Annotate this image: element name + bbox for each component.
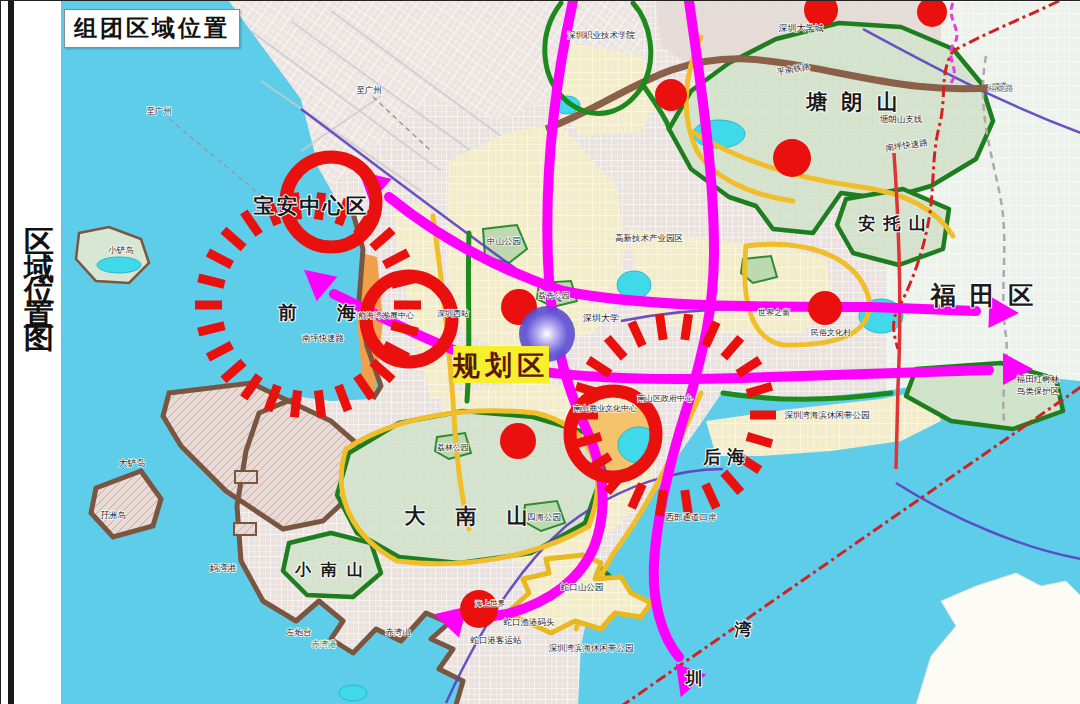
map-label: 孖洲岛 bbox=[100, 510, 126, 520]
map-label: 福田区 bbox=[930, 281, 1048, 309]
map-label: 深圳职业技术学院 bbox=[567, 30, 636, 40]
poi-dot bbox=[500, 423, 536, 459]
focus-tick bbox=[198, 278, 224, 284]
map-label: 鸟类保护区 bbox=[1017, 386, 1060, 396]
map-figure: 规划区 宝安中心区前海大南山小南山塘朗山安托山福田区后海湾圳深圳大学高新技术产业… bbox=[0, 0, 1080, 704]
planning-area-label: 规划区 bbox=[452, 351, 549, 381]
sidebar-title: 区域位置图 bbox=[17, 204, 61, 324]
map-label: 中山公园 bbox=[487, 236, 521, 246]
pier bbox=[235, 471, 257, 483]
poi-dot bbox=[808, 291, 842, 325]
sidebar-rule bbox=[8, 1, 14, 704]
map-label: 深圳大学 bbox=[583, 313, 619, 323]
focus-tick bbox=[198, 326, 224, 332]
focus-tick bbox=[392, 326, 418, 332]
focus-tick bbox=[685, 314, 689, 340]
map-label: 深圳湾海滨休闲带公园 bbox=[785, 410, 870, 420]
poi-dot bbox=[460, 590, 498, 628]
map-label: 深圳西站 bbox=[437, 309, 469, 318]
map-label: 安托山 bbox=[859, 214, 934, 233]
focus-tick bbox=[659, 314, 663, 340]
map-label: 至广州 bbox=[356, 85, 382, 95]
map-label: 荔香公园 bbox=[538, 291, 570, 300]
map-label: 海上世界 bbox=[475, 599, 506, 608]
focus-tick bbox=[294, 390, 297, 417]
map-label: 小南山 bbox=[294, 561, 373, 578]
map-label: 塘朗山 bbox=[806, 90, 912, 113]
map-label: 塘朗山支线 bbox=[879, 114, 923, 124]
map-label: 南山商业文化中心 bbox=[573, 404, 637, 413]
map-label: 蛇口山公园 bbox=[561, 582, 604, 592]
focus-tick bbox=[659, 490, 663, 516]
map-label: 深圳大学城 bbox=[779, 23, 824, 33]
map-label: 湾 bbox=[734, 620, 752, 639]
map-label: 至广州 bbox=[146, 106, 172, 116]
map-label: 民俗文化村 bbox=[811, 328, 851, 337]
map-label: 福龙路 bbox=[987, 83, 1014, 93]
map-title-box: 组团区域位置 bbox=[64, 9, 240, 48]
map-label: 世界之窗 bbox=[758, 308, 790, 317]
poi-dot bbox=[655, 79, 687, 111]
map-label: 南山区政府中心 bbox=[637, 394, 693, 403]
map-label: 蛇口渔港码头 bbox=[504, 617, 556, 627]
map-label: 圳 bbox=[685, 669, 703, 688]
map-label: 后海 bbox=[702, 447, 751, 467]
map-area: 规划区 宝安中心区前海大南山小南山塘朗山安托山福田区后海湾圳深圳大学高新技术产业… bbox=[61, 1, 1080, 704]
sidebar: 区域位置图 bbox=[1, 1, 61, 704]
map-label: 小铲岛 bbox=[108, 245, 134, 255]
map-label: 荔林公园 bbox=[437, 443, 469, 452]
map-label: 南坪快速路 bbox=[302, 333, 345, 343]
map-label: 宝安中心区 bbox=[254, 194, 369, 217]
focus-tick bbox=[318, 390, 321, 417]
map-label: 赤湾山 bbox=[385, 627, 411, 637]
map-label: 四海公园 bbox=[527, 512, 561, 522]
map-label: 蛇口港客运站 bbox=[471, 635, 523, 645]
map-label: 西部通道口岸 bbox=[666, 512, 718, 522]
poi-dot bbox=[773, 139, 811, 177]
map-label: 赤湾港 bbox=[311, 639, 337, 649]
map-label: 左炮台 bbox=[285, 627, 312, 637]
map-label: 妈湾港 bbox=[210, 563, 237, 573]
map-label: 大铲岛 bbox=[119, 458, 146, 468]
map-label: 深圳湾滨海休闲带公园 bbox=[549, 643, 634, 653]
map-label: 福田红树林 bbox=[1016, 374, 1060, 384]
map-label: 前海湾发展中心 bbox=[358, 311, 414, 320]
map-canvas: 规划区 宝安中心区前海大南山小南山塘朗山安托山福田区后海湾圳深圳大学高新技术产业… bbox=[61, 1, 1080, 704]
map-label: 高新技术产业园区 bbox=[615, 233, 683, 243]
pier bbox=[234, 523, 256, 535]
